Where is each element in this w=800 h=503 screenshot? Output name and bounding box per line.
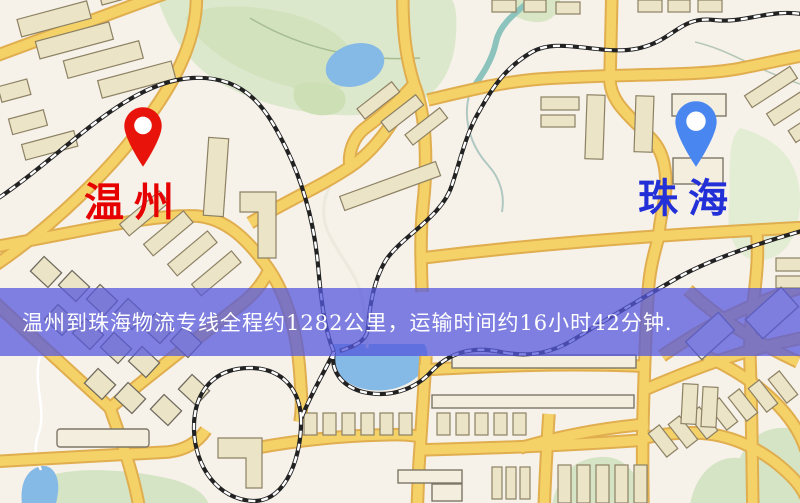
origin-label: 温州 [84, 183, 184, 223]
origin-marker-wenzhou[interactable] [121, 106, 165, 168]
route-info-text: 温州到珠海物流专线全程约1282公里，运输时间约16小时42分钟. [0, 307, 673, 337]
map-screenshot: 温州 珠海 温州到珠海物流专线全程约1282公里，运输时间约16小时42分钟. [0, 0, 800, 503]
destination-label: 珠海 [638, 179, 738, 219]
location-pin-icon [121, 106, 165, 168]
destination-marker-zhuhai[interactable] [668, 100, 724, 168]
route-info-banner: 温州到珠海物流专线全程约1282公里，运输时间约16小时42分钟. [0, 288, 800, 356]
location-pin-icon [668, 100, 724, 168]
map-background [0, 0, 800, 503]
